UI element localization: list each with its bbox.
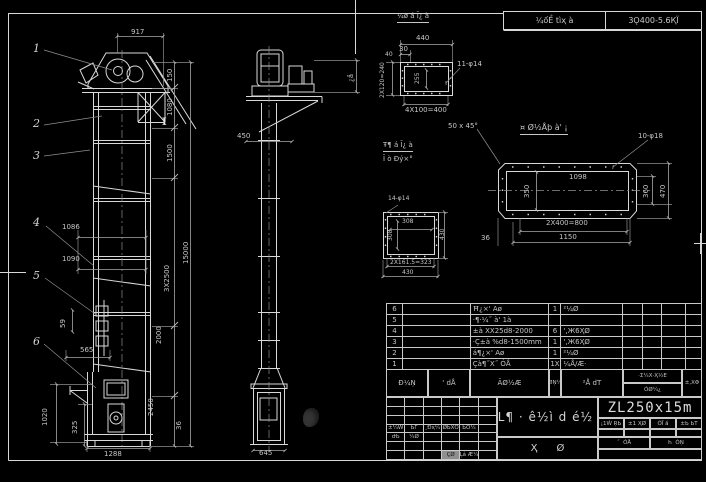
- model-number: ZL250x15m: [598, 397, 702, 418]
- title-grid-cell: [479, 398, 496, 406]
- dim-1150: 1150: [559, 234, 577, 242]
- balloon-5: 5: [33, 270, 40, 282]
- bom-row-5: 5·¶·¼˝ à' 1à: [386, 314, 701, 325]
- title-block-revision-grid: ±¼ẂЬΓ¸Đҳ¼ØЬXŌЬÓ¼ԺЬ¼ØÇØĻả Æ¼: [386, 397, 497, 460]
- bom-header-qty: ØŅ¼: [549, 369, 561, 397]
- bom-row-6: 6Ħ¿×' Aø1²¼Ø: [386, 303, 701, 314]
- bom-cell: [622, 358, 642, 369]
- bom-cell: [661, 347, 685, 358]
- dim-15000: 15000: [183, 242, 191, 264]
- bom-cell: 6: [386, 303, 402, 314]
- bom-cell: [685, 347, 701, 358]
- bom-cell: ¼Å/Æ·: [560, 358, 622, 369]
- bom-header-weight-bottom: ÓØ¼¿: [623, 383, 682, 397]
- dim-440: 440: [416, 35, 429, 43]
- title-grid-cell: [460, 442, 477, 450]
- dim-325: 325: [72, 421, 80, 434]
- title-grid-cell: [405, 398, 422, 406]
- title-grid-cell: Ļả Æ¼: [460, 451, 477, 459]
- bom-cell: ²¼Ø: [560, 303, 622, 314]
- title-grid-cell: [460, 398, 477, 406]
- title-grid-cell: [424, 433, 441, 441]
- section-mark-i: I: [162, 117, 167, 128]
- title-grid-cell: [442, 442, 459, 450]
- dim-308a: 308: [402, 219, 413, 226]
- dim-36-left: 36: [176, 421, 184, 430]
- title-grid-cell: [424, 451, 441, 459]
- hole-10-18: 10-φ18: [638, 133, 663, 141]
- title-grid-cell: ЬÓ¼: [460, 425, 477, 433]
- title-grid-cell: ±¼Ẃ: [387, 425, 404, 433]
- bom-cell: 1: [548, 303, 560, 314]
- title-grid-cell: [479, 433, 496, 441]
- title-grid-cell: [479, 407, 496, 415]
- title-grid-cell: [460, 433, 477, 441]
- balloon-4: 4: [33, 217, 40, 229]
- dim-350: 350: [524, 185, 532, 198]
- bom-cell: 2: [386, 347, 402, 358]
- title-grid-cell: [405, 416, 422, 424]
- bom-cell: [402, 325, 470, 336]
- title-grid-cell: [479, 425, 496, 433]
- title-grid-cell: [442, 416, 459, 424]
- bom-cell: 1: [548, 347, 560, 358]
- dim-40: 40: [385, 52, 393, 59]
- note-line2: Ī ò Ðý×°: [383, 156, 413, 164]
- bom-row-1: 1Çà¶˝X˝ ÓÅ1X¼Å/Æ·: [386, 358, 701, 369]
- bom-row-2: 2á¶¿×' Aø1²¼Ø: [386, 347, 701, 358]
- dim-430a: 430: [440, 229, 447, 240]
- title-grid-cell: [387, 451, 404, 459]
- bom-cell: [402, 347, 470, 358]
- dim-1020: 1020: [42, 408, 50, 426]
- balloon-1: 1: [33, 43, 40, 55]
- balloon-2: 2: [33, 118, 40, 130]
- dim-2x120: 2X120=240: [380, 62, 387, 98]
- title-grid-cell: [405, 442, 422, 450]
- param-label-1: ¡1Ẃ ŖЬ: [598, 418, 624, 429]
- dim-308b: 308: [388, 230, 395, 241]
- bom-cell: á¶¿×' Aø: [470, 347, 549, 358]
- bom-cell: [560, 314, 622, 325]
- bom-cell: [642, 347, 661, 358]
- param-label-4: ±Ь ЬТ: [676, 418, 702, 429]
- bom-cell: 5: [386, 314, 402, 325]
- hole-14-14: 14-φ14: [388, 196, 409, 203]
- dim-1500: 1500: [167, 144, 175, 162]
- dim-255: 255: [415, 73, 422, 84]
- bom-cell: [642, 358, 661, 369]
- bom-header: Đ¼Ņ ' dÅ ÃØ½Æ ØŅ¼ ²Å dT ·Σ¼X·Ҳ½E ÓØ¼¿ ±,…: [386, 369, 702, 397]
- front-view-dimensions: [44, 33, 194, 452]
- bom-header-code: ' dÅ: [428, 369, 470, 397]
- title-grid-cell: [460, 416, 477, 424]
- dim-2450: 2450: [148, 398, 156, 416]
- balloon-6: 6: [33, 336, 40, 348]
- dim-1098: 1098: [569, 174, 587, 182]
- approval-cell-left: ˝ ÓÅ: [598, 437, 650, 449]
- sheet-count-cell: Ҳ Ø: [497, 437, 598, 460]
- title-grid-cell: ЬΓ: [405, 425, 422, 433]
- sheet-header-bar: ¼ốỀ tìҳ à 3Ǫ400-5.6ҚЇ: [503, 11, 702, 30]
- detail-square-flange: [383, 205, 448, 278]
- header-bar-cell-right: 3Ǫ400-5.6ҚЇ: [605, 12, 701, 29]
- bom-cell: ',Ж6ҲØ: [560, 325, 622, 336]
- bom-cell: [402, 358, 470, 369]
- detail-top-flange: [386, 40, 460, 106]
- bom-cell: 1X: [548, 358, 560, 369]
- dim-2x400: 2X400=800: [546, 220, 588, 228]
- title-grid-cell: [387, 407, 404, 415]
- title-grid-cell: [479, 416, 496, 424]
- title-grid-cell: ÇØ: [442, 451, 459, 459]
- title-grid-cell: ØЬXŌ: [442, 425, 459, 433]
- bom-cell: [661, 358, 685, 369]
- side-view: [246, 46, 360, 452]
- bom-cell: [685, 325, 701, 336]
- bom-header-seq: Đ¼Ņ: [386, 369, 428, 397]
- title-grid-cell: [479, 451, 496, 459]
- note-line1: Ŧ¶ á Ī¿ à: [383, 142, 413, 152]
- bom-cell: [622, 347, 642, 358]
- bom-cell: [622, 314, 642, 325]
- title-grid-cell: [442, 398, 459, 406]
- bom-cell: [685, 303, 701, 314]
- bom-cell: [642, 336, 661, 347]
- title-grid-cell: [479, 442, 496, 450]
- param-label-3: ÓЇ ầ: [650, 418, 676, 429]
- dim-470: 470: [660, 185, 668, 198]
- title-grid-cell: [424, 442, 441, 450]
- bom-cell: [622, 325, 642, 336]
- bom-header-weight-top: ·Σ¼X·Ҳ½E: [623, 369, 682, 383]
- bom-cell: [685, 358, 701, 369]
- title-grid-cell: [424, 407, 441, 415]
- param-value-2: [624, 429, 650, 437]
- title-grid-cell: ¸Đҳ¼: [424, 425, 441, 433]
- bom-cell: [622, 336, 642, 347]
- dim-917: 917: [131, 29, 144, 37]
- title-grid-cell: [387, 398, 404, 406]
- bom-cell: [402, 314, 470, 325]
- title-grid-cell: [442, 433, 459, 441]
- front-view: [70, 50, 196, 450]
- bom-cell: [402, 303, 470, 314]
- title-grid-cell: [442, 407, 459, 415]
- bom-cell: [642, 314, 661, 325]
- dim-565: 565: [80, 347, 93, 355]
- detail4-title: ¤ Ø½Åþ à' ¡: [520, 124, 568, 135]
- dim-36-right: 36: [481, 235, 490, 243]
- header-bar-cell-left: ¼ốỀ tìҳ à: [504, 12, 605, 29]
- param-label-2: ±1 ҲØ: [624, 418, 650, 429]
- cad-drawing-canvas: ¼ốỀ tìҳ à 3Ǫ400-5.6ҚЇ 6Ħ¿×' Aø1²¼Ø5·¶·¼˝…: [0, 0, 706, 482]
- dim-side-vert: ¿ầ: [348, 74, 356, 82]
- title-grid-cell: [387, 416, 404, 424]
- dim-59: 59: [60, 319, 68, 328]
- bom-cell: [685, 314, 701, 325]
- dim-450: 450: [237, 133, 250, 141]
- detail1-title: ¼ø á Ī¿ à: [397, 13, 429, 23]
- bom-header-note: ±,XΦ: [682, 369, 702, 397]
- bom-cell: ·Ç±à %d8-1500mm: [470, 336, 549, 347]
- bom-cell: [685, 336, 701, 347]
- dim-30: 30: [399, 46, 408, 54]
- bom-cell: 6: [548, 325, 560, 336]
- dim-2x161: 2X161.5=323: [390, 260, 432, 267]
- bom-cell: Çà¶˝X˝ ÓÅ: [470, 358, 549, 369]
- balloon-3: 3: [33, 150, 40, 162]
- bom-cell: [661, 314, 685, 325]
- title-grid-cell: [424, 398, 441, 406]
- bom-cell: [661, 303, 685, 314]
- dim-1288: 1288: [104, 451, 122, 459]
- dim-1090: 1090: [62, 256, 80, 264]
- bom-cell: 1: [386, 358, 402, 369]
- bom-cell: [622, 303, 642, 314]
- bom-cell: [661, 325, 685, 336]
- dim-4x100: 4X100=400: [405, 107, 447, 115]
- dim-645: 645: [259, 450, 272, 458]
- bom-cell: 1: [548, 336, 560, 347]
- param-value-4: [676, 429, 702, 437]
- approval-cell-right: Һ ÓŅ: [650, 437, 702, 449]
- bom-cell: [661, 336, 685, 347]
- param-value-3: [650, 429, 676, 437]
- bom-cell: ²¼Ø: [560, 347, 622, 358]
- bom-table: 6Ħ¿×' Aø1²¼Ø5·¶·¼˝ à' 1à4±à XX25d8-20006…: [386, 303, 702, 369]
- dim-150: 150: [167, 69, 175, 82]
- title-grid-cell: [424, 416, 441, 424]
- dim-3x2500: 3X2500: [164, 265, 172, 292]
- bom-cell: [402, 336, 470, 347]
- dim-2000: 2000: [156, 326, 164, 344]
- title-grid-cell: ¼Ø: [405, 433, 422, 441]
- title-block-empty-cell: [598, 449, 702, 460]
- title-grid-cell: [460, 407, 477, 415]
- title-grid-cell: [405, 451, 422, 459]
- title-grid-cell: ԺЬ: [387, 433, 404, 441]
- title-grid-cell: [387, 442, 404, 450]
- bom-cell: [642, 303, 661, 314]
- bom-cell: 3: [386, 336, 402, 347]
- bom-header-material: ²Å dT: [561, 369, 623, 397]
- dim-360: 360: [643, 185, 651, 198]
- bom-row-3: 3·Ç±à %d8-1500mm1',Ж6ҲØ: [386, 336, 701, 347]
- bom-row-4: 4±à XX25d8-20006',Ж6ҲØ: [386, 325, 701, 336]
- bom-cell: ·¶·¼˝ à' 1à: [470, 314, 549, 325]
- bom-cell: Ħ¿×' Aø: [470, 303, 549, 314]
- drawing-title: ZL¶ · ê½ì d é½ ù: [497, 397, 598, 437]
- dim-430b: 430: [402, 270, 413, 277]
- bom-cell: 4: [386, 325, 402, 336]
- bom-cell: [642, 325, 661, 336]
- hole-11-14: 11-φ14: [457, 61, 482, 69]
- bom-header-name: ÃØ½Æ: [470, 369, 549, 397]
- title-grid-cell: [405, 407, 422, 415]
- dim-1080: 1080: [167, 98, 175, 116]
- dim-1086: 1086: [62, 224, 80, 232]
- bom-cell: ±à XX25d8-2000: [470, 325, 549, 336]
- param-value-1: [598, 429, 624, 437]
- bom-cell: ',Ж6ҲØ: [560, 336, 622, 347]
- note-chamfer: 50 x 45°: [448, 123, 478, 131]
- bom-cell: [548, 314, 560, 325]
